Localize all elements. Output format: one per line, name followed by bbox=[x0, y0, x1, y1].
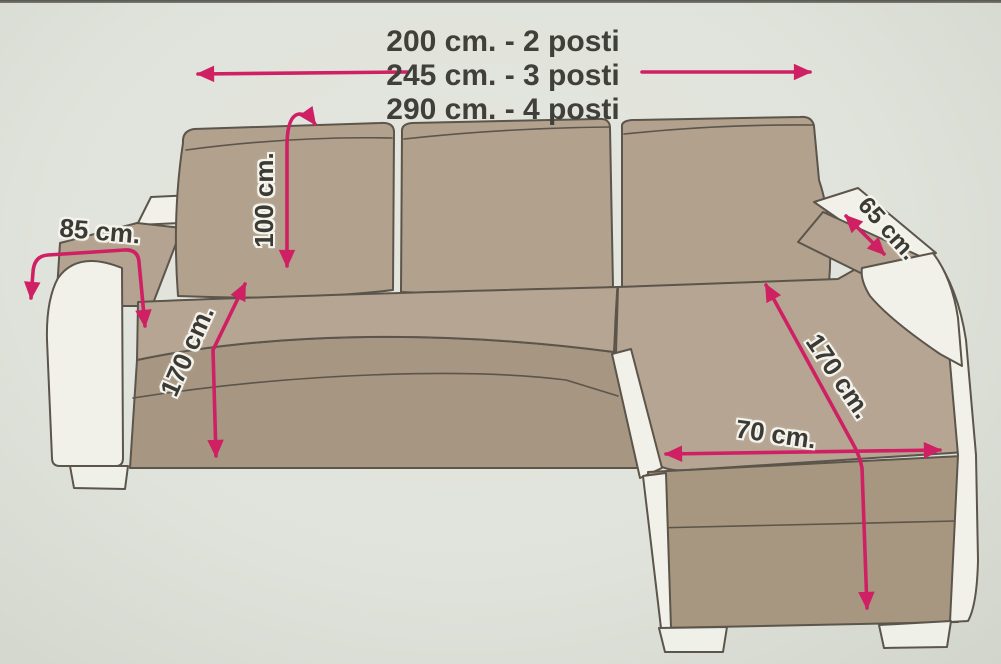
left-front-leg bbox=[70, 466, 128, 489]
back-cushion-3 bbox=[622, 117, 830, 288]
left-arm-front-panel bbox=[47, 261, 123, 466]
sofa-dimension-diagram: 200 cm. - 2 posti 245 cm. - 3 posti 290 … bbox=[0, 0, 1001, 664]
chaise-left-leg bbox=[659, 627, 727, 652]
chaise-front-face bbox=[648, 456, 962, 628]
chaise-right-leg bbox=[879, 621, 951, 648]
back-cushion-1 bbox=[176, 123, 394, 298]
dimension-backrest-height: 100 cm. bbox=[251, 145, 277, 255]
seat-front-face bbox=[130, 337, 648, 468]
size-option-3-posti: 245 cm. - 3 posti bbox=[322, 61, 684, 91]
size-option-2-posti: 200 cm. - 2 posti bbox=[322, 27, 684, 57]
chaise-front-left-white-band bbox=[643, 473, 671, 628]
back-cushion-2 bbox=[401, 119, 613, 294]
size-option-4-posti: 290 cm. - 4 posti bbox=[322, 95, 684, 125]
